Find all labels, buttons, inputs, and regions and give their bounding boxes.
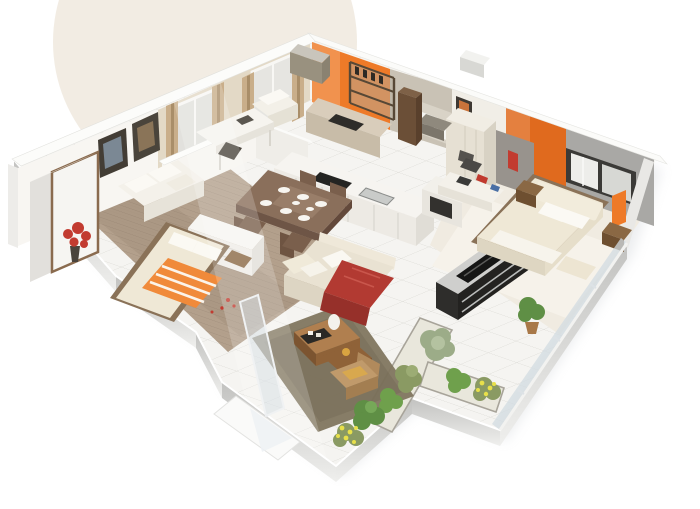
- gold-bowl: [342, 348, 350, 356]
- white-vase: [328, 314, 340, 330]
- roof-vent-box: [460, 50, 490, 78]
- nw-wall-outer-sliver: [8, 164, 18, 248]
- orange-interior-sliver: [612, 190, 626, 228]
- floor-plan-render: [0, 0, 700, 509]
- floor-plan-canvas: [0, 0, 700, 509]
- fridge: [398, 87, 422, 146]
